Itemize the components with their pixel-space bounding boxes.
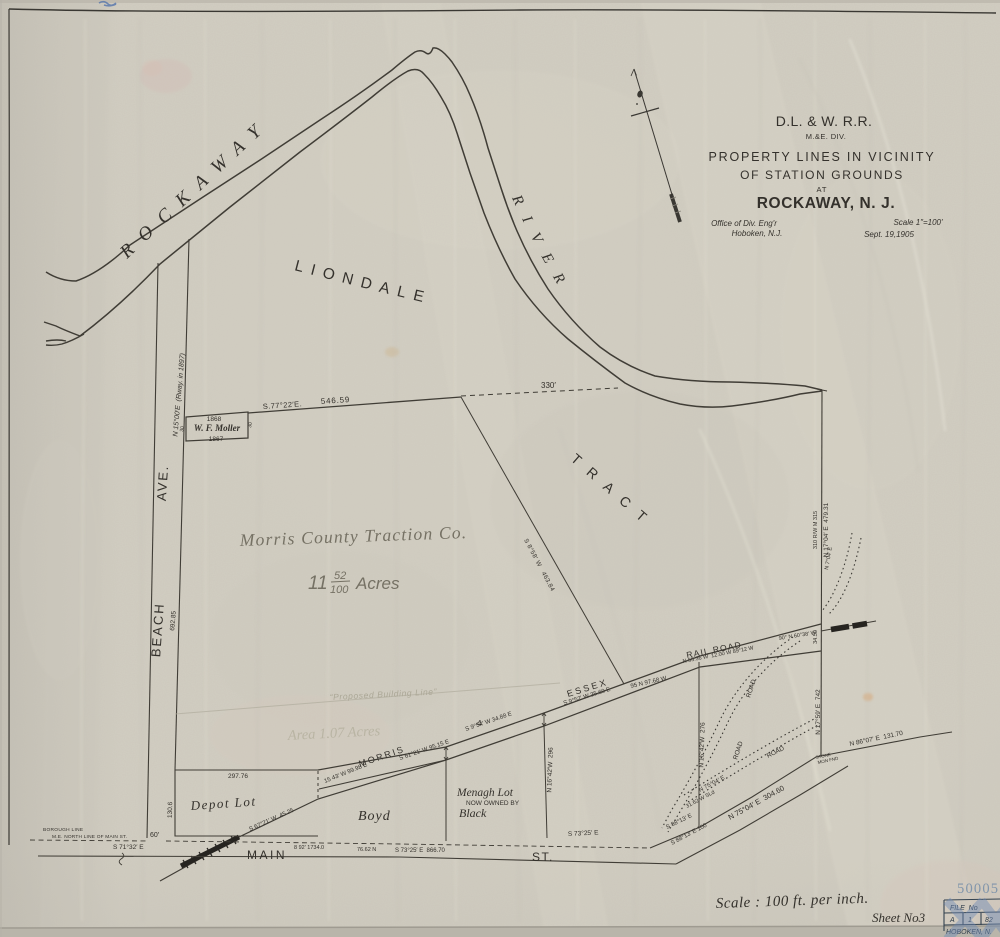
svg-text:S 73°25′ E: S 73°25′ E — [568, 828, 600, 838]
svg-text:310 R/W M 315: 310 R/W M 315 — [813, 511, 819, 549]
svg-text:130.6: 130.6 — [167, 801, 175, 818]
svg-text:Office of Div. Eng'r: Office of Div. Eng'r — [711, 219, 777, 228]
svg-text:Scale 1"=100': Scale 1"=100' — [893, 218, 943, 227]
svg-text:100: 100 — [330, 584, 349, 596]
svg-text:1867: 1867 — [209, 436, 224, 443]
svg-text:11: 11 — [308, 573, 328, 594]
svg-text:60′: 60′ — [150, 832, 160, 839]
svg-text:S 73°25′ E 866.70: S 73°25′ E 866.70 — [395, 848, 446, 854]
svg-text:S 71°32′ E: S 71°32′ E — [113, 843, 144, 851]
svg-text:52: 52 — [334, 570, 346, 582]
svg-text:MAIN: MAIN — [247, 848, 287, 862]
svg-text:BOROUGH LINE: BOROUGH LINE — [43, 827, 83, 833]
svg-text:N 17°59′ E 742: N 17°59′ E 742 — [814, 689, 822, 735]
svg-text:AT: AT — [816, 185, 827, 194]
svg-text:34.50: 34.50 — [813, 630, 819, 644]
svg-text:8 92′ 1734.0: 8 92′ 1734.0 — [294, 845, 324, 851]
svg-text:1868: 1868 — [207, 416, 222, 423]
svg-text:Menagh Lot: Menagh Lot — [456, 787, 514, 799]
svg-text:A: A — [949, 917, 955, 924]
svg-text:N 16°42′W 276: N 16°42′W 276 — [697, 722, 707, 768]
svg-text:N 16°42′W 296: N 16°42′W 296 — [545, 747, 555, 793]
svg-text:Hoboken, N.J.: Hoboken, N.J. — [732, 229, 783, 238]
svg-text:PROPERTY LINES IN VICINITY: PROPERTY LINES IN VICINITY — [709, 150, 936, 164]
svg-text:Boyd: Boyd — [358, 809, 391, 824]
svg-text:76.62 N: 76.62 N — [357, 847, 376, 853]
svg-text:Sept. 19,1905: Sept. 19,1905 — [864, 230, 914, 239]
svg-text:M.E. NORTH LINE OF MAIN ST.: M.E. NORTH LINE OF MAIN ST. — [52, 834, 127, 840]
svg-text:W. F. Moller: W. F. Moller — [194, 423, 241, 433]
svg-text:AVE.: AVE. — [154, 464, 172, 502]
svg-text:D.L. & W. R.R.: D.L. & W. R.R. — [776, 113, 873, 129]
svg-text:ROCKAWAY, N. J.: ROCKAWAY, N. J. — [757, 195, 896, 212]
svg-text:Black: Black — [459, 806, 487, 820]
svg-text:50005: 50005 — [957, 881, 999, 897]
svg-text:330′: 330′ — [541, 381, 556, 390]
svg-text:M.&E. DIV.: M.&E. DIV. — [806, 132, 846, 141]
svg-text:ST.: ST. — [532, 850, 554, 864]
svg-text:297.76: 297.76 — [228, 773, 248, 780]
svg-text:OF STATION GROUNDS: OF STATION GROUNDS — [740, 168, 904, 182]
svg-text:Sheet No3: Sheet No3 — [872, 910, 926, 925]
svg-text:Acres: Acres — [355, 574, 400, 593]
